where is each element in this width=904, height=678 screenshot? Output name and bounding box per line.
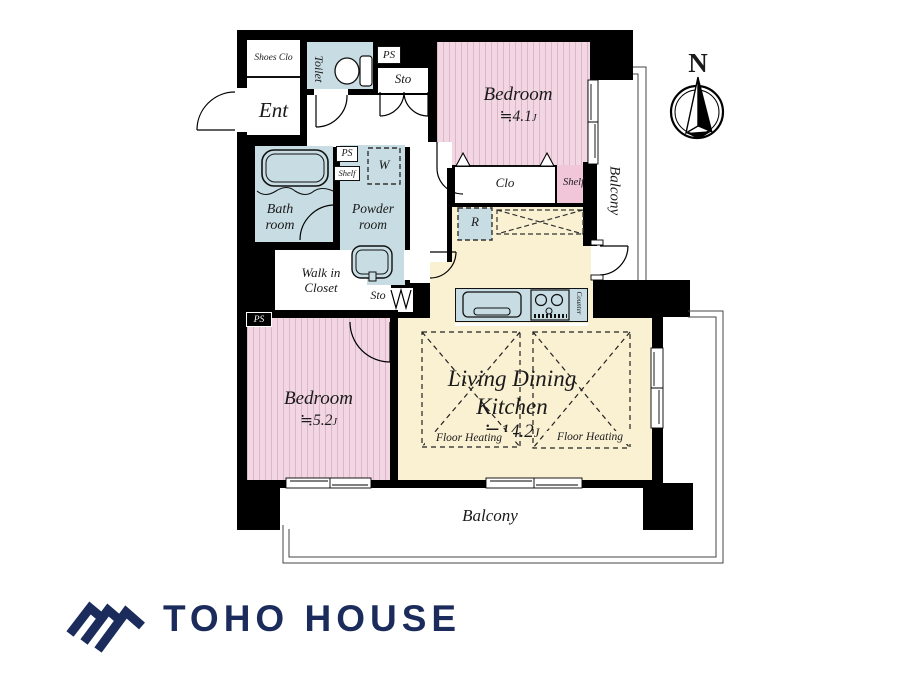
opening-balcony-door xyxy=(591,246,603,276)
wall-bedroom-south-right xyxy=(390,310,398,480)
ldk-label-line2: Kitchen xyxy=(447,394,577,420)
opening-powder xyxy=(404,250,413,280)
shelf-north-label: Shelf xyxy=(557,177,590,189)
bedroom-south-size-value: ≒5.2 xyxy=(300,412,332,429)
pillar-bottom-left xyxy=(237,483,280,530)
bedroom-north-size-unit: J xyxy=(532,113,537,124)
bedroom-south-label: Bedroom xyxy=(247,388,390,410)
bedroom-north-size: ≒4.1J xyxy=(443,108,593,126)
pipe-space-south-label: PS xyxy=(254,315,265,325)
balcony-south-label: Balcony xyxy=(440,506,540,526)
washer-label: W xyxy=(368,158,400,173)
ldk-label-line1: Living Dining xyxy=(447,366,577,392)
pipe-space-mid-label: PS xyxy=(341,148,352,160)
pillar-bottom-right xyxy=(643,483,693,530)
ldk-door-connector xyxy=(430,262,452,318)
bedroom-north-size-value: ≒4.1 xyxy=(499,108,531,125)
compass-north-label: N xyxy=(684,48,712,79)
shoes-closet-divider xyxy=(247,76,300,78)
refrigerator-label: R xyxy=(458,215,492,230)
opening-entry xyxy=(236,88,247,132)
kitchen-counter xyxy=(455,288,588,322)
brand-logo-mark xyxy=(66,580,146,660)
wall-topright-corner xyxy=(590,30,633,80)
walk-in-closet-label: Walk in Closet xyxy=(285,266,357,296)
storage-mid-label: Sto xyxy=(363,289,393,303)
shelf-mid-label: Shelf xyxy=(339,169,356,179)
pipe-space-top-box: PS xyxy=(377,46,401,64)
shelf-mid-box: Shelf xyxy=(334,166,360,181)
powder-room-label: Powder room xyxy=(342,201,404,232)
wall-midright-block xyxy=(597,280,690,317)
hallway-upper xyxy=(307,95,428,147)
pipe-space-mid-box: PS xyxy=(336,146,358,162)
entrance-label: Ent xyxy=(247,98,300,122)
compass-icon xyxy=(671,77,723,139)
bedroom-south-size: ≒5.2J xyxy=(247,412,390,430)
floor-heating-right-label: Floor Heating xyxy=(546,431,634,444)
kitchen-counter-edge xyxy=(455,323,588,326)
counter-label: Counter xyxy=(575,283,583,323)
balcony-east-label: Balcony xyxy=(605,161,622,221)
brand-logo-text: TOHO HOUSE xyxy=(163,598,461,640)
toho-house-logo-icon xyxy=(66,580,146,660)
opening-bedroom-north xyxy=(428,142,452,168)
floor-heating-left-label: Floor Heating xyxy=(425,432,513,445)
bedroom-south-size-unit: J xyxy=(332,417,337,428)
ldk-size-unit: J xyxy=(534,425,540,440)
toilet-label: Toilet xyxy=(311,47,325,91)
pipe-space-top-label: PS xyxy=(383,49,395,62)
wall-closet-left xyxy=(447,165,455,207)
pipe-space-south-box: PS xyxy=(246,312,272,327)
bedroom-north-label: Bedroom xyxy=(443,84,593,106)
folding-door-gap xyxy=(391,288,413,312)
storage-top-label: Sto xyxy=(378,72,428,87)
floorplan-canvas: PS PS Shelf PS Shoes Clo Ent Toilet Sto … xyxy=(0,0,904,678)
shoes-closet-label: Shoes Clo xyxy=(247,53,300,64)
wall-bedroom-north-left xyxy=(428,42,437,142)
closet-north-label: Clo xyxy=(455,176,555,191)
bathroom-label: Bath room xyxy=(252,202,308,234)
wall-kitchen-right xyxy=(583,162,597,246)
